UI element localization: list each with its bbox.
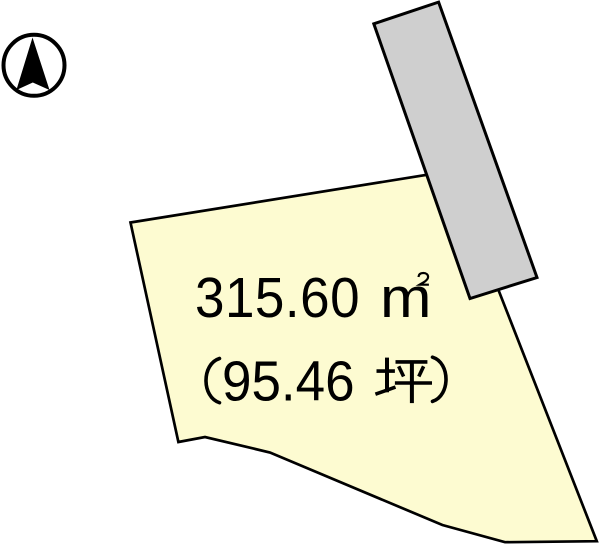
svg-text:m: m	[380, 266, 432, 330]
svg-text:315.60: 315.60	[195, 265, 360, 329]
svg-text:95.46: 95.46	[222, 349, 355, 413]
